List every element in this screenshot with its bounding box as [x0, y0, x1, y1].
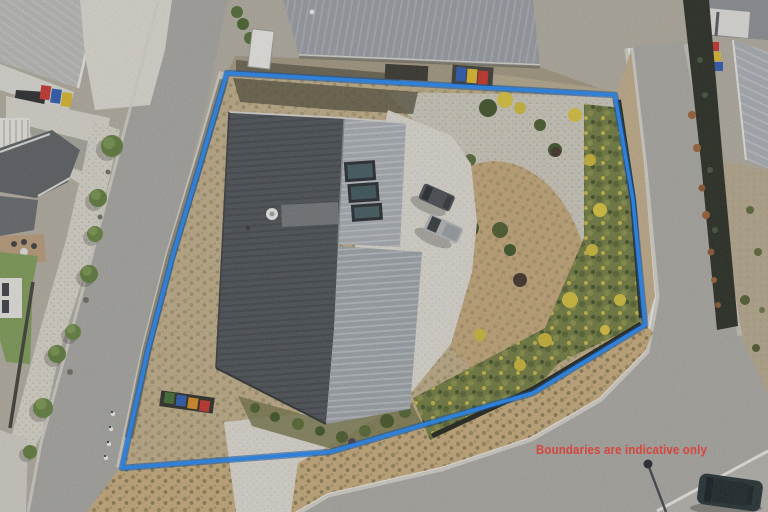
aerial-photo-stage: Boundaries are indicative only [0, 0, 768, 512]
disclaimer-text: Boundaries are indicative only [536, 442, 707, 457]
